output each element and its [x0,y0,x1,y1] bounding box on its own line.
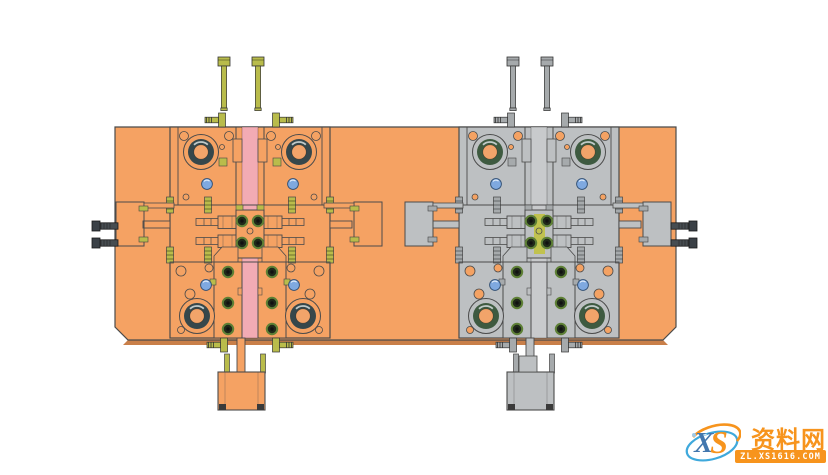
site-name: 资料网 [751,428,826,452]
clamp-bolt [92,238,118,248]
clamp-bolt [92,221,118,231]
cad-screenshot: { "watermark": { "logo_x": "X", "logo_s"… [0,0,828,475]
watermark-text: 资料网 ZL.XS1616.COM [735,428,826,463]
clamp-bolt [671,238,697,248]
clamp-bolt [671,221,697,231]
watermark-logo: X S [683,422,741,468]
tail-spacer [519,356,537,372]
mold-cad-drawing [0,0,828,475]
site-url-badge: ZL.XS1616.COM [735,450,826,463]
watermark: X S 资料网 ZL.XS1616.COM [683,422,826,468]
logo-letter-s: S [710,424,728,461]
